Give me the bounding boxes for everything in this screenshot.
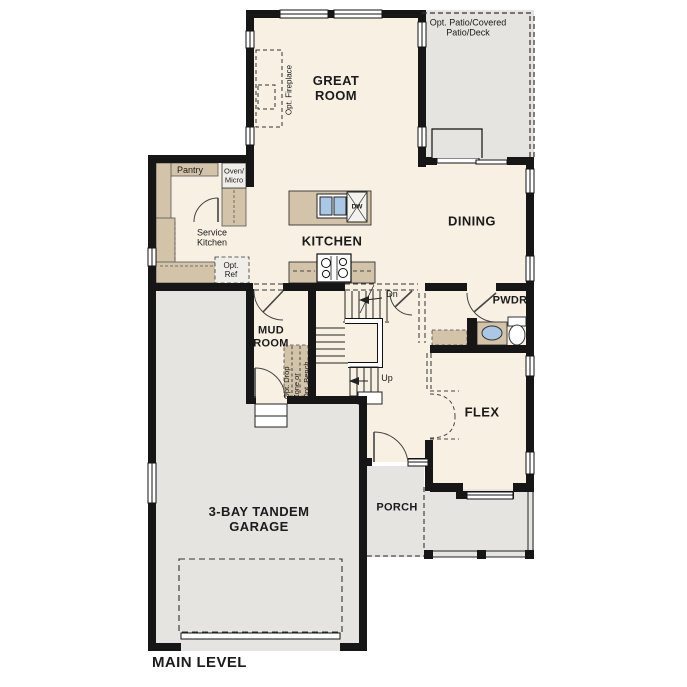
room-label-pantry: Pantry <box>160 165 220 175</box>
annotation-dishwasher: DW <box>352 203 363 210</box>
annotation-opt-ref: Opt. Ref <box>219 261 243 279</box>
patio-landing <box>432 129 482 158</box>
plan-title: MAIN LEVEL <box>152 654 247 671</box>
room-label-garage: 3-BAY TANDEM GARAGE <box>199 505 319 535</box>
room-label-flex: FLEX <box>452 406 512 421</box>
annotation-micro-line: Micro <box>219 176 249 185</box>
annotation-opt-fireplace: Opt. Fireplace <box>284 65 293 115</box>
room-label-porch: PORCH <box>369 502 425 515</box>
floorplan-canvas: GREAT ROOM Opt. Patio/Covered Patio/Deck… <box>0 0 687 687</box>
annotation-stairs-up: Up <box>381 373 393 383</box>
room-label-pwdr: PWDR <box>485 295 535 308</box>
room-label-great-room: GREAT ROOM <box>294 74 378 104</box>
room-label-service-kitchen: Service Kitchen <box>189 228 235 249</box>
annotation-drop-zone: Opt. Drop Zone or Opt. Bench <box>283 343 310 399</box>
drop-zone-line-3: Opt. Bench <box>303 343 311 399</box>
annotation-stairs-down: Dn <box>386 289 398 299</box>
drop-zone-line-2: Zone or <box>293 343 301 399</box>
room-label-kitchen: KITCHEN <box>287 235 377 250</box>
room-label-dining: DINING <box>427 215 517 230</box>
drop-zone-line-1: Opt. Drop <box>283 343 291 399</box>
annotation-oven-micro: Oven/ Micro <box>219 167 249 184</box>
room-label-patio: Opt. Patio/Covered Patio/Deck <box>422 18 514 39</box>
